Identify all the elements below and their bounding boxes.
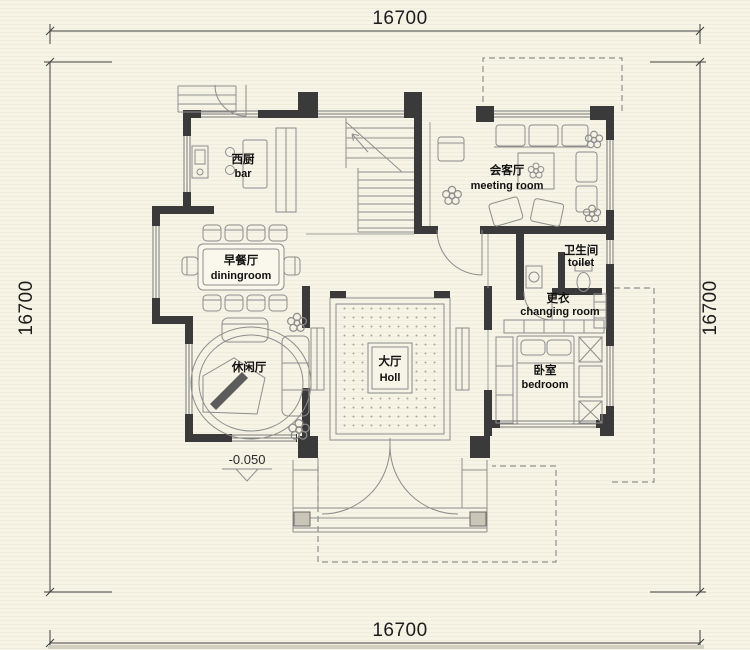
room-leisure: 休闲厅 <box>191 313 311 439</box>
porch-column-right <box>470 512 486 526</box>
plant-icon <box>443 186 462 204</box>
doors <box>215 85 552 514</box>
toilet-label-zh: 卫生间 <box>564 243 599 257</box>
dimension-right-label: 16700 <box>700 280 721 335</box>
room-changing: 更衣 changing room <box>520 291 606 328</box>
bar-label-en: bar <box>234 168 252 180</box>
meeting-label-zh: 会客厅 <box>489 163 525 177</box>
bar-label-zh: 西厨 <box>232 153 255 166</box>
dimension-top-label: 16700 <box>372 8 427 29</box>
plant-icon <box>528 163 544 178</box>
dining-label-zh: 早餐厅 <box>224 253 259 267</box>
room-hall: 大厅 Holl <box>311 291 469 440</box>
main-entrance-double-door <box>322 438 458 514</box>
room-bar: 西厨 bar <box>192 128 296 212</box>
staircase <box>346 118 414 232</box>
bedroom-label-zh: 卧室 <box>534 363 557 377</box>
dimension-left: 16700 <box>16 58 112 596</box>
leisure-rug <box>191 327 311 439</box>
dimension-bottom: 16700 <box>46 620 704 649</box>
dimension-left-label: 16700 <box>16 280 37 335</box>
dimension-top: 16700 <box>46 8 704 44</box>
toilet-label-en: toilet <box>568 257 595 269</box>
dining-label-en: diningroom <box>211 270 272 282</box>
dashed-canopy-right <box>612 288 654 482</box>
room-bedroom: 卧室 bedroom <box>496 320 604 424</box>
changing-label-zh: 更衣 <box>547 291 570 305</box>
page-edge-bar <box>48 645 704 649</box>
dining-table <box>198 244 284 290</box>
hall-label-en: Holl <box>380 372 401 384</box>
hall-label-zh: 大厅 <box>379 354 402 368</box>
changing-label-en: changing room <box>520 306 600 318</box>
bedroom-label-en: bedroom <box>521 379 568 391</box>
porch <box>293 458 487 532</box>
porch-column-left <box>294 512 310 526</box>
dimension-right: 16700 <box>650 58 721 596</box>
meeting-label-en: meeting room <box>471 180 544 192</box>
dimension-bottom-label: 16700 <box>372 620 427 641</box>
plant-icon <box>583 205 600 222</box>
room-dining: 早餐厅 diningroom <box>182 225 300 311</box>
toilet-vanity <box>526 266 542 288</box>
entry-steps <box>178 86 236 112</box>
level-marker-triangle-icon <box>236 469 258 481</box>
level-marker: -0.050 <box>222 452 272 481</box>
bedroom-closet <box>504 320 604 333</box>
leisure-label-zh: 休闲厅 <box>231 360 267 374</box>
meeting-room-door <box>437 230 482 275</box>
meeting-armchair <box>438 137 464 161</box>
level-marker-value: -0.050 <box>229 452 266 467</box>
stair-direction-arrow <box>352 134 368 152</box>
room-meeting: 会客厅 meeting room <box>438 125 603 227</box>
hall-label-box <box>368 343 412 393</box>
floor-plan-canvas: 16700 16700 16700 16700 <box>0 0 750 650</box>
dashed-canopy-top-right <box>483 58 622 112</box>
bedroom-wardrobe <box>496 337 513 423</box>
leisure-loveseat <box>222 318 268 342</box>
floor-plan: 16700 16700 16700 16700 <box>0 0 750 650</box>
dashed-canopy-porch <box>318 466 556 562</box>
